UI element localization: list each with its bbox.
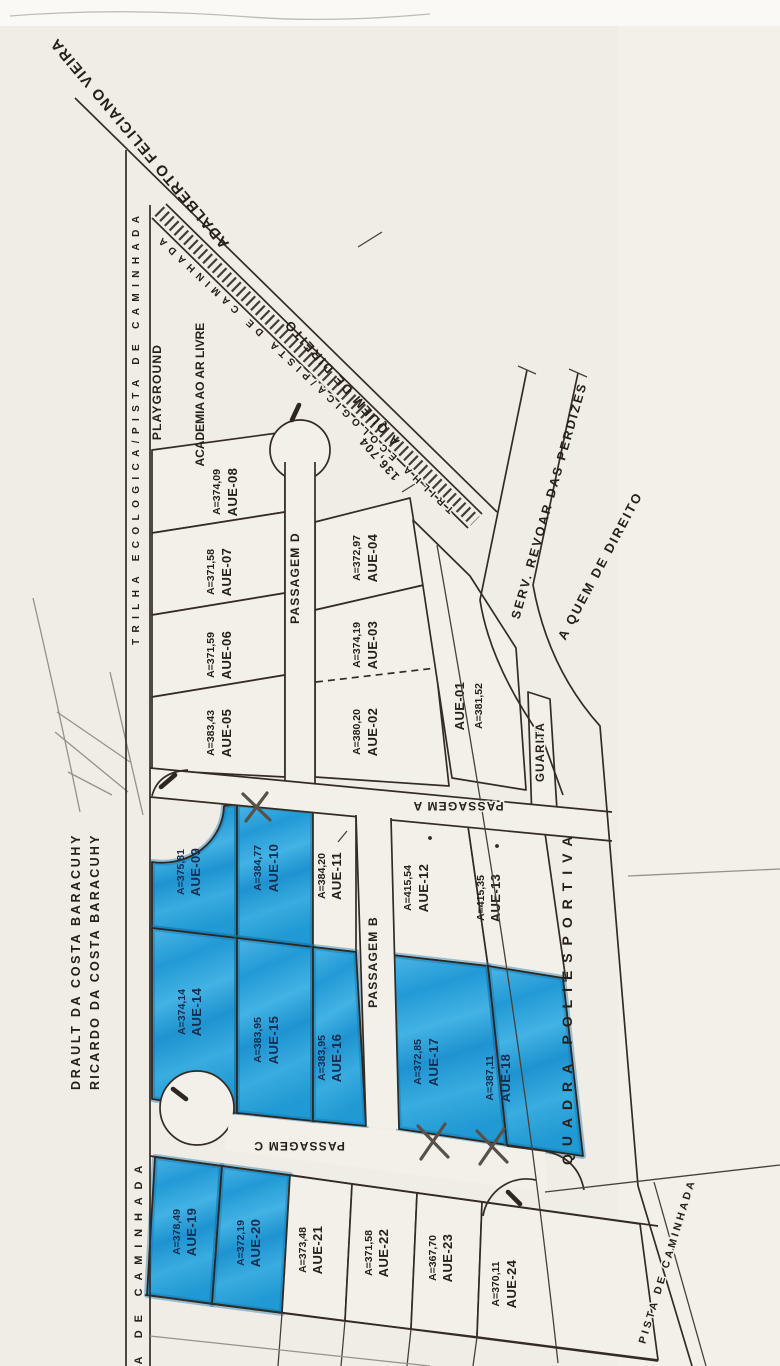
plat-map-svg: AUE-08 A=374,09 AUE-07 A=371,58 AUE-06 A…	[0, 0, 780, 1366]
lot-area: A=383,95	[252, 1017, 264, 1063]
lot-id: AUE-17	[426, 1038, 441, 1087]
lot-id: AUE-02	[365, 708, 380, 757]
road-label-passagem-d: PASSAGEM D	[288, 532, 302, 624]
lot-AUE-24: AUE-24 A=370,11	[477, 1202, 658, 1360]
lot-id: AUE-12	[416, 864, 431, 913]
lot-area: A=374,19	[351, 622, 363, 668]
lot-id: AUE-09	[188, 848, 203, 897]
lot-area: A=381,52	[473, 683, 485, 729]
lot-id: AUE-07	[219, 548, 234, 597]
lot-area: A=375,81	[175, 849, 187, 895]
lot-area: A=374,14	[176, 989, 188, 1035]
lot-id: AUE-06	[219, 631, 234, 680]
guarita-label: GUARITA	[535, 722, 547, 782]
lot-id: AUE-18	[498, 1054, 513, 1103]
owner-name-label: RICARDO DA COSTA BARACUHY	[88, 834, 102, 1090]
lot-area: A=372,19	[235, 1220, 247, 1266]
lot-area: A=374,09	[211, 469, 223, 515]
owner-name-label: DRAULT DA COSTA BARACUHY	[69, 834, 83, 1090]
lot-area: A=384,20	[316, 853, 328, 899]
lot-area: A=371,58	[363, 1230, 375, 1276]
survey-dot	[428, 836, 432, 840]
lot-area: A=387,11	[484, 1055, 496, 1100]
lot-area: A=371,59	[205, 632, 217, 678]
lot-area: A=383,43	[205, 710, 217, 756]
paper-right-band	[618, 26, 780, 1366]
lot-id: AUE-03	[365, 621, 380, 670]
lot-id: AUE-05	[219, 709, 234, 758]
lot-AUE-22: AUE-22 A=371,58	[345, 1184, 417, 1329]
road-label-passagem-b: PASSAGEM B	[366, 916, 380, 1008]
lot-area: A=373,48	[297, 1227, 309, 1273]
lot-id: AUE-11	[329, 852, 344, 900]
lot-area: A=372,97	[351, 535, 363, 581]
road-label-passagem-a: PASSAGEM A	[412, 799, 503, 813]
lot-id: AUE-16	[329, 1034, 344, 1083]
lot-id: AUE-23	[440, 1234, 455, 1283]
lot-area: A=383,95	[316, 1035, 328, 1081]
lot-id: AUE-24	[504, 1259, 519, 1308]
lot-AUE-23: AUE-23 A=367,70	[411, 1193, 482, 1337]
lot-id: AUE-08	[225, 468, 240, 517]
lot-id: AUE-14	[189, 987, 204, 1036]
lot-AUE-11: AUE-11 A=384,20	[313, 811, 356, 952]
lot-area: A=372,85	[412, 1039, 424, 1085]
lot-area: A=370,11	[490, 1261, 502, 1306]
lot-area: A=415,54	[402, 865, 414, 911]
lot-id: AUE-10	[266, 844, 281, 893]
lot-area: A=371,58	[205, 549, 217, 595]
lot-shape	[315, 668, 449, 786]
lot-area: A=378,49	[171, 1209, 183, 1255]
lot-AUE-20: AUE-20 A=372,19	[212, 1166, 290, 1313]
lot-id: AUE-20	[248, 1219, 263, 1268]
lot-id: AUE-04	[365, 533, 380, 582]
survey-dot	[495, 844, 499, 848]
culdesac-passagem-c	[160, 1071, 234, 1145]
playground-label: PLAYGROUND	[150, 344, 164, 440]
lot-AUE-21: AUE-21 A=373,48	[282, 1175, 352, 1321]
lot-id: AUE-15	[266, 1016, 281, 1065]
lot-AUE-10: AUE-10 A=384,77	[237, 804, 313, 947]
lot-area: A=367,70	[427, 1235, 439, 1281]
road-passagem-d-fill	[285, 460, 315, 792]
lot-AUE-16: AUE-16 A=383,95	[313, 947, 366, 1126]
lot-AUE-02: AUE-02 A=380,20	[315, 668, 449, 786]
scanned-subdivision-plan: AUE-08 A=374,09 AUE-07 A=371,58 AUE-06 A…	[0, 0, 780, 1366]
academia-label: ACADEMIA AO AR LIVRE	[193, 322, 207, 467]
lot-id: AUE-19	[184, 1208, 199, 1257]
road-label-passagem-c: PASSAGEM C	[253, 1139, 345, 1153]
paper-top-band	[0, 0, 780, 26]
lot-id: AUE-21	[310, 1226, 325, 1275]
lot-AUE-15: AUE-15 A=383,95	[237, 938, 313, 1121]
lot-id: AUE-22	[376, 1229, 391, 1278]
lot-area: A=380,20	[351, 709, 363, 755]
lot-area: A=415,35	[475, 875, 487, 921]
lot-area: A=384,77	[252, 845, 264, 891]
